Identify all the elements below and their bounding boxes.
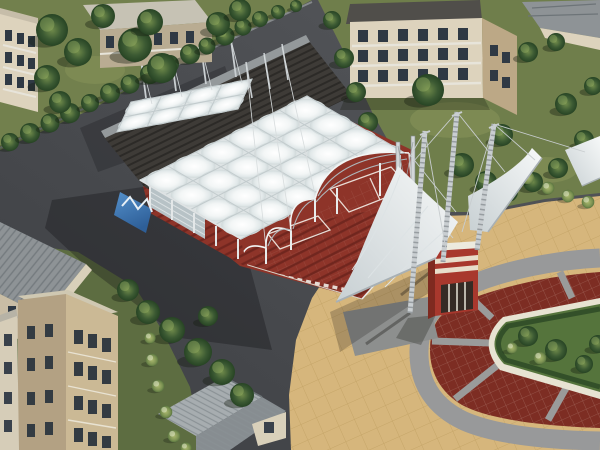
render-viewport xyxy=(0,0,600,450)
apartment-block xyxy=(0,8,38,112)
apartment-brick-block xyxy=(18,290,118,450)
house-left-edge xyxy=(0,309,19,450)
scene-render xyxy=(0,0,600,450)
